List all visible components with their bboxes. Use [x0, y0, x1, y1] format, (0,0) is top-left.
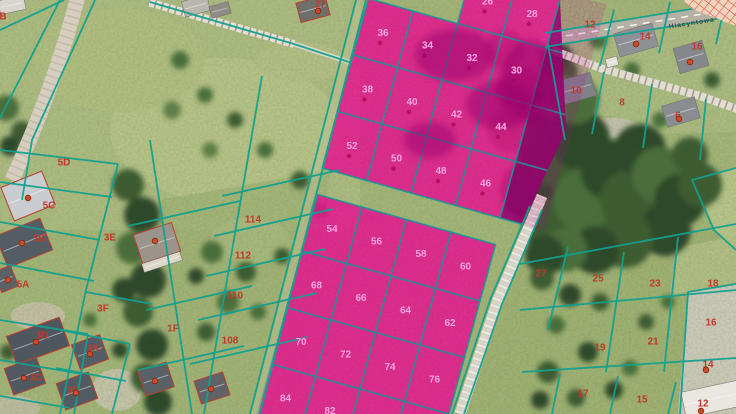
tree-cluster — [197, 323, 215, 341]
building-point-marker — [152, 378, 158, 384]
tree-cluster — [274, 248, 290, 264]
parcel-label-5B: 5B — [33, 234, 46, 245]
parcel-label-14: 14 — [639, 32, 651, 43]
parcel-label-3F: 3F — [97, 304, 109, 315]
parcel-label-18: 18 — [707, 279, 719, 290]
tree-cluster — [112, 342, 128, 358]
parcel-label-110: 110 — [227, 291, 244, 302]
highlight-parcel-label-46: 46 — [480, 179, 492, 190]
parcel-label-27: 27 — [535, 269, 547, 280]
building-point-marker — [633, 41, 639, 47]
highlight-parcel-label-30: 30 — [511, 66, 523, 77]
parcel-label-23: 23 — [649, 279, 661, 290]
parcel-label-5D: 5D — [58, 158, 71, 169]
building-point-marker — [676, 116, 682, 122]
tree-cluster — [559, 284, 581, 306]
parcel-label-8: 8 — [619, 98, 625, 109]
tree-cluster — [136, 329, 168, 361]
parcel-label-B: B — [0, 12, 7, 23]
parcel-label-16: 16 — [691, 42, 703, 53]
parcel-label-3C: 3C — [30, 373, 43, 384]
highlight-parcel-label-74: 74 — [384, 362, 396, 373]
aerial-cadastral-map[interactable]: B2712141610865D5C5B3E5A3F3D3A3C3B1141121… — [0, 0, 736, 414]
parcel-label-3E: 3E — [104, 233, 117, 244]
tree-cluster — [171, 51, 189, 69]
building-point-marker — [703, 367, 709, 373]
tree-cluster — [202, 142, 218, 158]
tree-cluster — [622, 360, 638, 376]
tree-cluster — [83, 313, 97, 327]
parcel-label-10: 10 — [570, 86, 582, 97]
tree-cluster — [531, 391, 549, 409]
highlight-parcel-label-60: 60 — [460, 262, 472, 273]
parcel-label-25: 25 — [592, 274, 604, 285]
parcel-label-16: 16 — [705, 318, 717, 329]
building-point-marker — [5, 277, 11, 283]
highlight-parcel-label-62: 62 — [444, 318, 456, 329]
building-point-marker — [21, 375, 27, 381]
building-point-marker — [25, 195, 31, 201]
building-point-marker — [152, 238, 158, 244]
highlight-parcel-label-72: 72 — [340, 350, 352, 361]
highlight-parcel-label-38: 38 — [362, 85, 374, 96]
tree-cluster — [537, 361, 559, 383]
parcel-label-5A: 5A — [17, 280, 30, 291]
highlight-parcel-label-28: 28 — [526, 9, 538, 20]
tree-cluster — [163, 101, 181, 119]
parcel-label-15: 15 — [636, 395, 648, 406]
tree-cluster — [638, 314, 654, 330]
building-point-marker — [19, 240, 25, 246]
highlight-parcel-label-58: 58 — [415, 249, 427, 260]
highlight-parcel-label-70: 70 — [295, 337, 307, 348]
tree-cluster — [704, 72, 720, 88]
tree-cluster — [201, 241, 223, 263]
building-point-marker — [208, 386, 214, 392]
highlight-parcel-label-32: 32 — [466, 53, 478, 64]
highlight-parcel-label-26: 26 — [482, 0, 494, 8]
tree-cluster — [197, 87, 213, 103]
highlight-parcel-label-44: 44 — [495, 122, 507, 133]
parcel-label-17: 17 — [577, 389, 589, 400]
highlight-parcel-label-50: 50 — [391, 154, 403, 165]
building-point-marker — [33, 339, 39, 345]
highlight-parcel-label-34: 34 — [422, 41, 434, 52]
highlight-parcel-label-56: 56 — [371, 237, 383, 248]
parcel-label-108: 108 — [222, 336, 239, 347]
highlight-parcel-label-42: 42 — [451, 110, 463, 121]
highlight-parcel-label-66: 66 — [355, 293, 367, 304]
highlight-parcel-label-48: 48 — [435, 166, 447, 177]
highlight-parcel-label-40: 40 — [406, 97, 418, 108]
building-point-marker — [87, 351, 93, 357]
parcel-label-5C: 5C — [43, 201, 56, 212]
parcel-label-21: 21 — [647, 337, 659, 348]
parcel-label-114: 114 — [245, 215, 262, 226]
highlight-parcel-label-64: 64 — [400, 306, 412, 317]
parcel-label-1F: 1F — [167, 324, 179, 335]
highlight-parcel-label-36: 36 — [377, 28, 389, 39]
building-point-marker — [698, 408, 704, 414]
building-point-marker — [687, 59, 693, 65]
highlight-parcel-label-68: 68 — [311, 281, 323, 292]
building-point-marker — [73, 390, 79, 396]
tree-cluster — [112, 169, 144, 201]
tree-cluster — [188, 268, 204, 284]
parcel-label-12: 12 — [584, 20, 596, 31]
parcel-label-12: 12 — [697, 399, 709, 410]
highlight-parcel-label-76: 76 — [429, 375, 441, 386]
highlight-parcel-label-84: 84 — [280, 394, 292, 405]
tree-cluster — [257, 142, 273, 158]
highlight-parcel-label-82: 82 — [324, 406, 336, 414]
parcel-label-112: 112 — [235, 251, 252, 262]
building-point-marker — [315, 8, 321, 14]
map-viewport[interactable]: B2712141610865D5C5B3E5A3F3D3A3C3B1141121… — [0, 0, 736, 414]
tree-cluster — [227, 112, 243, 128]
highlight-parcel-label-52: 52 — [346, 141, 358, 152]
parcel-label-19: 19 — [594, 343, 606, 354]
highlight-parcel-label-54: 54 — [326, 224, 338, 235]
